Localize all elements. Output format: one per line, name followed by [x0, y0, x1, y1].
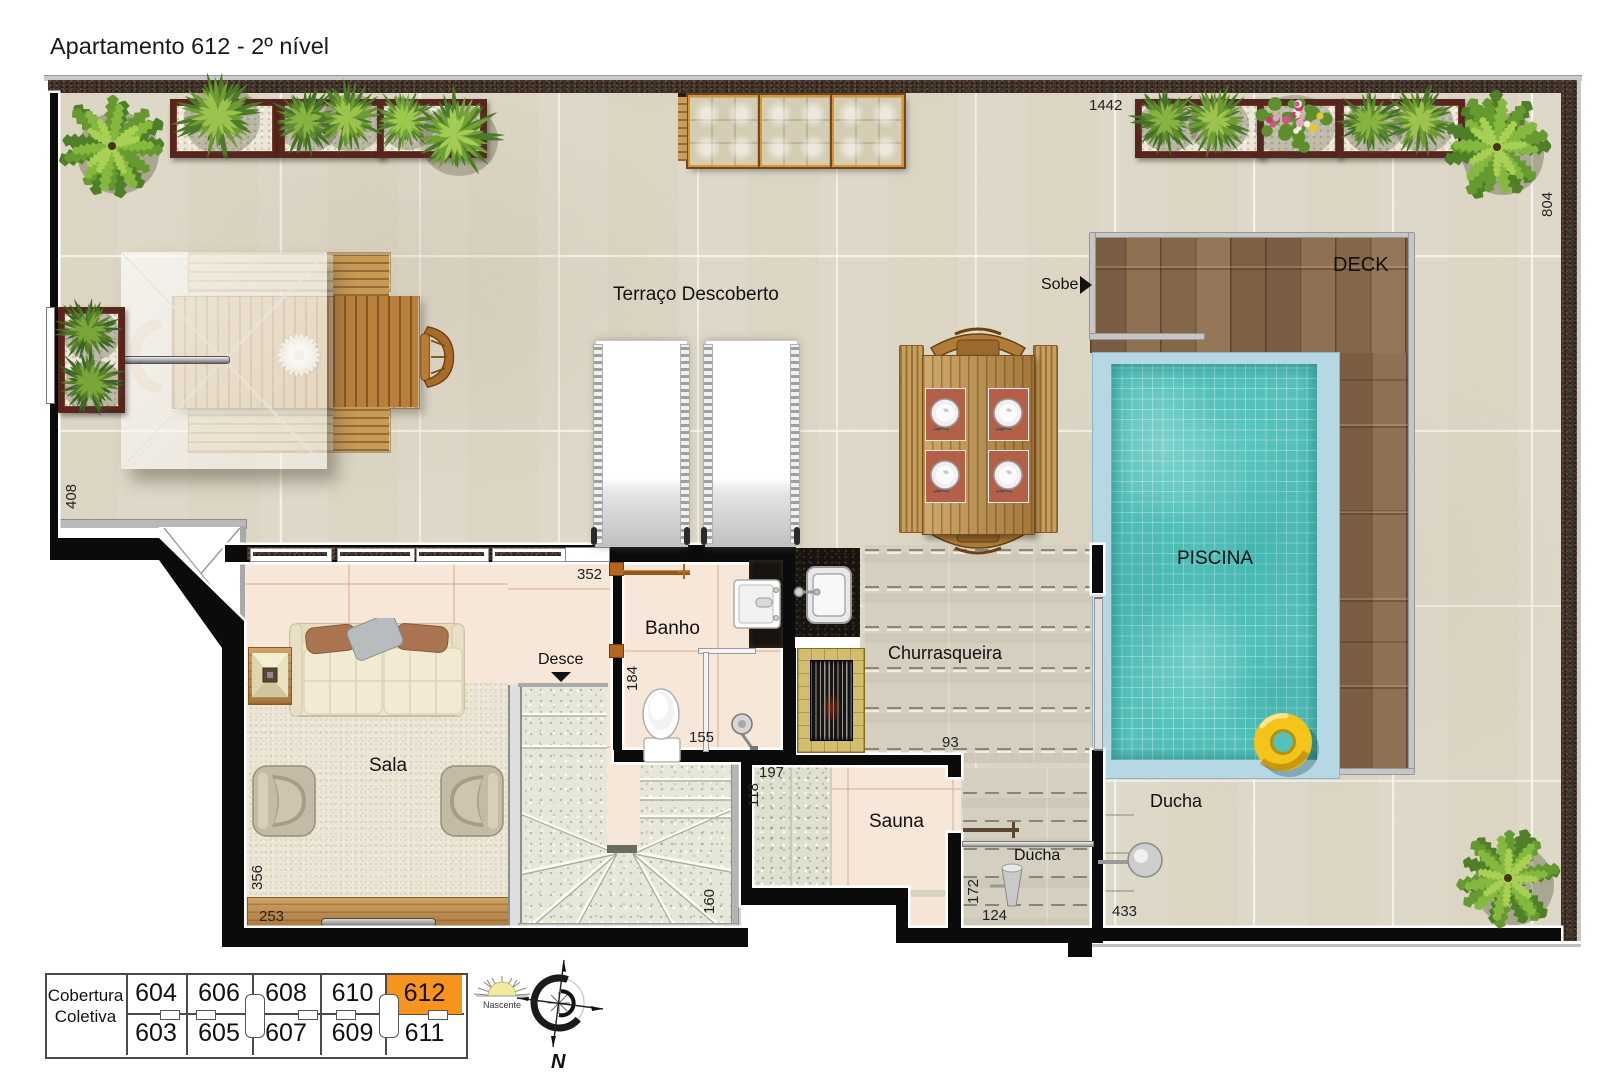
svg-text:N: N — [551, 1051, 566, 1072]
